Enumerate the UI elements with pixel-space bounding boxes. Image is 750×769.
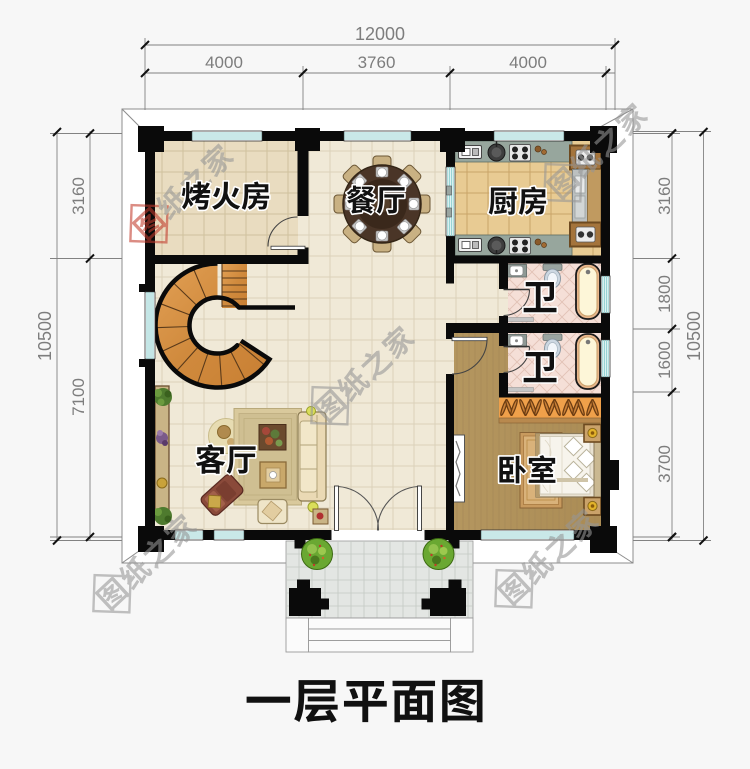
svg-text:4000: 4000	[205, 53, 243, 72]
svg-text:10500: 10500	[684, 311, 704, 361]
svg-text:3160: 3160	[69, 177, 88, 215]
svg-text:12000: 12000	[355, 24, 405, 44]
svg-text:1800: 1800	[655, 275, 674, 313]
svg-text:3700: 3700	[655, 445, 674, 483]
svg-text:10500: 10500	[35, 311, 55, 361]
svg-text:7100: 7100	[69, 378, 88, 416]
svg-text:1600: 1600	[655, 341, 674, 379]
svg-text:3160: 3160	[655, 177, 674, 215]
svg-text:3760: 3760	[358, 53, 396, 72]
svg-text:4000: 4000	[509, 53, 547, 72]
